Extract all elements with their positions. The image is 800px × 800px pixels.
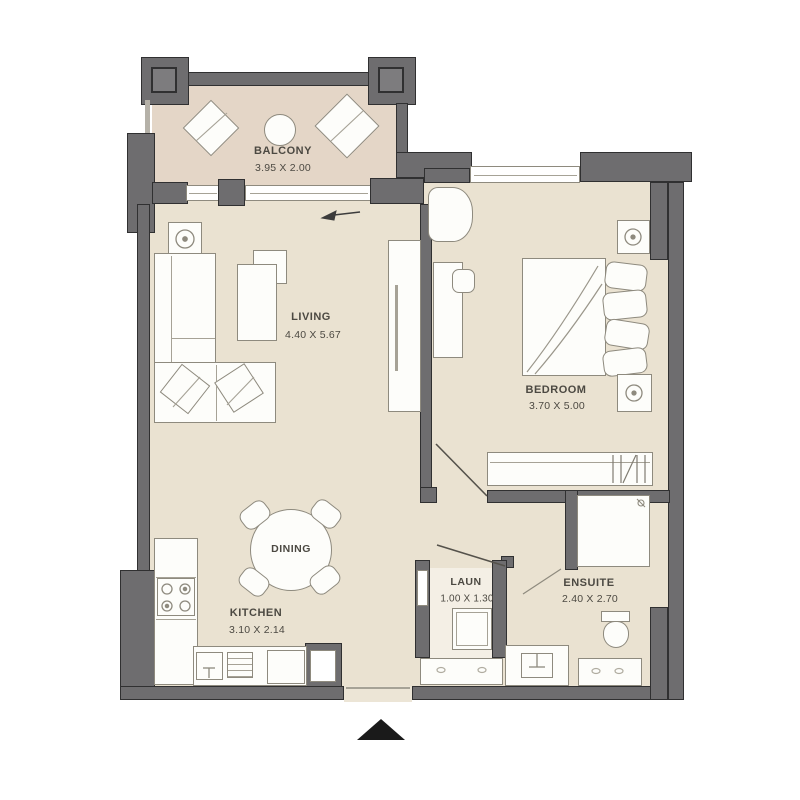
pillar-inner bbox=[151, 67, 177, 93]
sink-basin-icon bbox=[521, 653, 553, 678]
left-wall bbox=[137, 204, 150, 586]
ceiling-fixture-icon bbox=[168, 222, 202, 256]
stove-icon bbox=[157, 578, 195, 616]
balcony-pillar-top-right bbox=[368, 57, 416, 105]
nightstand-top bbox=[617, 220, 650, 254]
washing-machine-icon bbox=[452, 608, 492, 650]
nightstand-bottom bbox=[617, 374, 652, 412]
floor-plan: BALCONY 3.95 X 2.00 LIVING 4.40 X 5.67 B… bbox=[0, 0, 800, 800]
laundry-label: LAUN bbox=[450, 576, 481, 588]
kitchen-label: KITCHEN bbox=[230, 607, 282, 619]
right-wall-bump-bottom bbox=[650, 607, 668, 700]
sliding-door-pillar bbox=[218, 179, 245, 206]
shower bbox=[577, 495, 650, 567]
desk-chair-icon bbox=[452, 269, 475, 293]
toilet-bowl-icon bbox=[603, 621, 629, 648]
left-pillar-lower bbox=[120, 570, 155, 700]
laundry-wall-right bbox=[492, 560, 507, 658]
right-wall-bump-top bbox=[650, 182, 668, 260]
bed-pillow-icon bbox=[602, 289, 649, 321]
laundry-counter bbox=[420, 658, 503, 685]
bottom-wall-left bbox=[120, 686, 344, 700]
coffee-table-icon bbox=[237, 264, 277, 341]
bed-pillow-icon bbox=[602, 346, 649, 377]
balcony-dims: 3.95 X 2.00 bbox=[255, 162, 311, 174]
laundry-dims: 1.00 X 1.30 bbox=[440, 594, 493, 605]
entry-door-panel bbox=[310, 650, 336, 682]
kitchen-drawers-icon bbox=[227, 652, 253, 678]
balcony-pillar-top-left bbox=[141, 57, 189, 105]
bed bbox=[522, 258, 606, 376]
ensuite-counter bbox=[578, 658, 642, 686]
pillar-inner bbox=[378, 67, 404, 93]
sliding-door-left-wall bbox=[152, 182, 188, 204]
balcony-table-icon bbox=[264, 114, 296, 146]
bed-pillow-icon bbox=[604, 261, 649, 293]
entry-step-line bbox=[346, 687, 410, 689]
entrance-arrow-icon bbox=[357, 719, 405, 740]
balcony-label: BALCONY bbox=[254, 145, 312, 157]
balcony-top-wall bbox=[183, 72, 375, 86]
dishwasher-icon bbox=[267, 650, 305, 684]
living-label: LIVING bbox=[291, 311, 331, 323]
sliding-door-glass-left bbox=[186, 185, 219, 201]
living-dims: 4.40 X 5.67 bbox=[285, 329, 341, 341]
ensuite-label: ENSUITE bbox=[563, 577, 614, 589]
junction-pillar-lower bbox=[370, 178, 424, 204]
laundry-wall-inset bbox=[417, 570, 428, 606]
bottom-wall-right bbox=[412, 686, 668, 700]
kitchen-dims: 3.10 X 2.14 bbox=[229, 624, 285, 636]
ensuite-dims: 2.40 X 2.70 bbox=[562, 593, 618, 605]
bedroom-window bbox=[470, 166, 580, 183]
tv-unit bbox=[388, 240, 421, 412]
bedroom-dims: 3.70 X 5.00 bbox=[529, 400, 585, 412]
living-bedroom-wall bbox=[420, 204, 432, 490]
top-right-corner-wall bbox=[580, 152, 692, 182]
sliding-door-glass-main bbox=[245, 185, 372, 201]
dining-label: DINING bbox=[271, 543, 311, 555]
kitchen-sink-icon bbox=[196, 652, 223, 680]
bedroom-top-wall-left bbox=[424, 168, 470, 183]
wardrobe bbox=[487, 452, 653, 486]
right-wall bbox=[668, 182, 684, 700]
hall-wall-cap bbox=[420, 487, 437, 503]
bedroom-label: BEDROOM bbox=[526, 384, 587, 396]
armchair-icon bbox=[428, 187, 473, 242]
